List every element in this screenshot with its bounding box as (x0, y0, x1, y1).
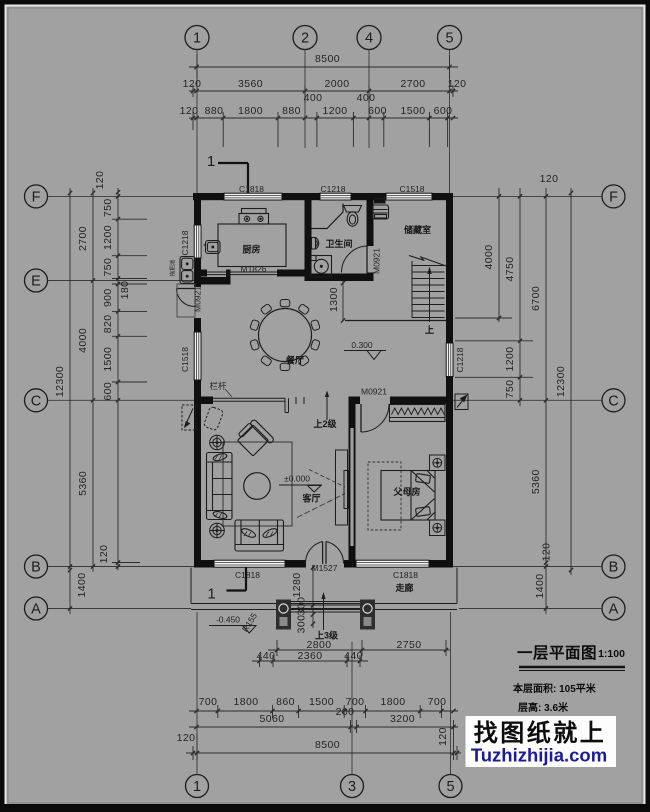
svg-text:拖把池: 拖把池 (169, 259, 177, 276)
svg-text:1280: 1280 (291, 573, 303, 598)
svg-text:4750: 4750 (504, 257, 516, 282)
svg-text:6700: 6700 (530, 286, 542, 311)
svg-text:8500: 8500 (315, 53, 340, 65)
svg-text:1800: 1800 (238, 105, 263, 117)
svg-text:700: 700 (428, 696, 447, 708)
svg-text:A: A (31, 602, 41, 618)
svg-text:120: 120 (437, 727, 449, 746)
svg-text:M0921: M0921 (372, 248, 382, 274)
svg-text:600: 600 (434, 105, 453, 117)
svg-text:2360: 2360 (298, 650, 323, 662)
svg-text:2700: 2700 (401, 78, 426, 90)
svg-text:4: 4 (365, 31, 373, 47)
svg-text:400: 400 (357, 92, 376, 104)
svg-text:120: 120 (540, 173, 559, 185)
svg-text:5: 5 (446, 779, 454, 795)
svg-text:1800: 1800 (381, 696, 406, 708)
svg-text:M0921: M0921 (361, 387, 387, 397)
svg-text:12300: 12300 (555, 366, 567, 397)
svg-text:120: 120 (98, 545, 110, 564)
svg-text:120: 120 (541, 543, 553, 562)
svg-text:1: 1 (193, 779, 201, 795)
svg-text:2750: 2750 (397, 639, 422, 651)
svg-text:200: 200 (336, 706, 355, 718)
svg-text:1400: 1400 (534, 574, 546, 599)
svg-text:±0.000: ±0.000 (284, 474, 310, 484)
svg-text:2: 2 (301, 31, 309, 47)
svg-text:440: 440 (257, 650, 276, 662)
svg-text:卫生间: 卫生间 (325, 238, 352, 249)
svg-text:C1218: C1218 (180, 230, 190, 255)
svg-text:1200: 1200 (323, 105, 348, 117)
svg-text:3: 3 (348, 779, 356, 795)
svg-text:1200: 1200 (102, 225, 114, 250)
svg-text:F: F (32, 189, 41, 205)
svg-text:M0921: M0921 (193, 286, 203, 312)
svg-text:820: 820 (102, 315, 114, 334)
svg-text:600: 600 (102, 382, 114, 401)
svg-text:120: 120 (94, 171, 106, 190)
svg-text:C1518: C1518 (180, 347, 190, 372)
svg-text:5360: 5360 (530, 469, 542, 494)
svg-text:750: 750 (504, 380, 516, 399)
svg-text:厨房: 厨房 (242, 244, 260, 255)
svg-text:B: B (609, 560, 619, 576)
svg-text:上3级: 上3级 (315, 630, 339, 641)
svg-text:5060: 5060 (260, 713, 285, 725)
svg-text:本层面积: 105平米: 本层面积: 105平米 (513, 682, 597, 695)
svg-text:880: 880 (282, 105, 301, 117)
svg-text:440: 440 (344, 650, 363, 662)
svg-text:B: B (31, 560, 41, 576)
svg-text:400: 400 (304, 92, 323, 104)
svg-text:上2级: 上2级 (313, 418, 337, 429)
svg-text:3560: 3560 (238, 78, 263, 90)
svg-text:750: 750 (102, 258, 114, 277)
svg-text:120: 120 (180, 105, 199, 117)
svg-text:A: A (609, 602, 619, 618)
svg-text:E: E (31, 274, 41, 290)
svg-text:120: 120 (448, 78, 467, 90)
svg-text:5: 5 (445, 31, 453, 47)
svg-text:一层平面图: 一层平面图 (517, 644, 597, 662)
svg-text:层高: 3.6米: 层高: 3.6米 (518, 701, 569, 714)
svg-text:3200: 3200 (390, 713, 415, 725)
svg-text:0.300: 0.300 (351, 340, 373, 350)
svg-text:1500: 1500 (309, 696, 334, 708)
svg-text:750: 750 (102, 198, 114, 217)
svg-text:找图纸就上: 找图纸就上 (474, 719, 607, 747)
svg-text:120: 120 (183, 78, 202, 90)
svg-text:C1218: C1218 (320, 184, 345, 194)
svg-text:8500: 8500 (315, 739, 340, 751)
svg-text:储藏室: 储藏室 (404, 224, 431, 235)
svg-text:上: 上 (425, 324, 434, 335)
svg-text:300: 300 (296, 597, 308, 616)
svg-text:860: 860 (276, 696, 295, 708)
svg-text:1400: 1400 (76, 573, 88, 598)
svg-text:5360: 5360 (77, 471, 89, 496)
svg-text:1: 1 (207, 586, 215, 603)
svg-text:C1818: C1818 (235, 570, 260, 580)
svg-text:C: C (608, 393, 618, 409)
svg-text:C: C (31, 393, 41, 409)
svg-text:C1518: C1518 (399, 184, 424, 194)
svg-text:180: 180 (119, 281, 131, 300)
svg-text:父母房: 父母房 (392, 486, 420, 497)
svg-text:4000: 4000 (483, 245, 495, 270)
svg-text:880: 880 (205, 105, 224, 117)
svg-text:1500: 1500 (102, 347, 114, 372)
svg-text:2000: 2000 (325, 78, 350, 90)
svg-text:1: 1 (207, 153, 215, 170)
svg-text:栏杆: 栏杆 (209, 381, 227, 391)
svg-text:2700: 2700 (77, 226, 89, 251)
svg-text:300: 300 (296, 615, 308, 634)
svg-text:餐厅: 餐厅 (285, 355, 304, 366)
svg-text:M1527: M1527 (312, 563, 338, 573)
svg-text:1:100: 1:100 (598, 648, 625, 660)
svg-text:600: 600 (368, 105, 387, 117)
svg-text:4000: 4000 (77, 328, 89, 353)
svg-text:C1818: C1818 (393, 570, 418, 580)
svg-text:1800: 1800 (234, 696, 259, 708)
svg-text:-0.450: -0.450 (216, 615, 240, 625)
svg-text:1: 1 (193, 31, 201, 47)
svg-text:M1826: M1826 (241, 264, 267, 274)
svg-text:走廊: 走廊 (394, 582, 413, 593)
svg-text:900: 900 (102, 288, 114, 307)
svg-text:1300: 1300 (328, 287, 340, 312)
svg-text:C1818: C1818 (239, 184, 264, 194)
svg-text:C1218: C1218 (455, 347, 465, 372)
svg-text:1200: 1200 (504, 347, 516, 372)
svg-text:客厅: 客厅 (301, 493, 320, 504)
svg-text:120: 120 (177, 732, 196, 744)
svg-text:F: F (609, 189, 618, 205)
svg-text:700: 700 (199, 696, 218, 708)
svg-text:Tuzhizhijia.com: Tuzhizhijia.com (471, 745, 607, 766)
svg-text:1500: 1500 (401, 105, 426, 117)
svg-text:12300: 12300 (54, 366, 66, 397)
